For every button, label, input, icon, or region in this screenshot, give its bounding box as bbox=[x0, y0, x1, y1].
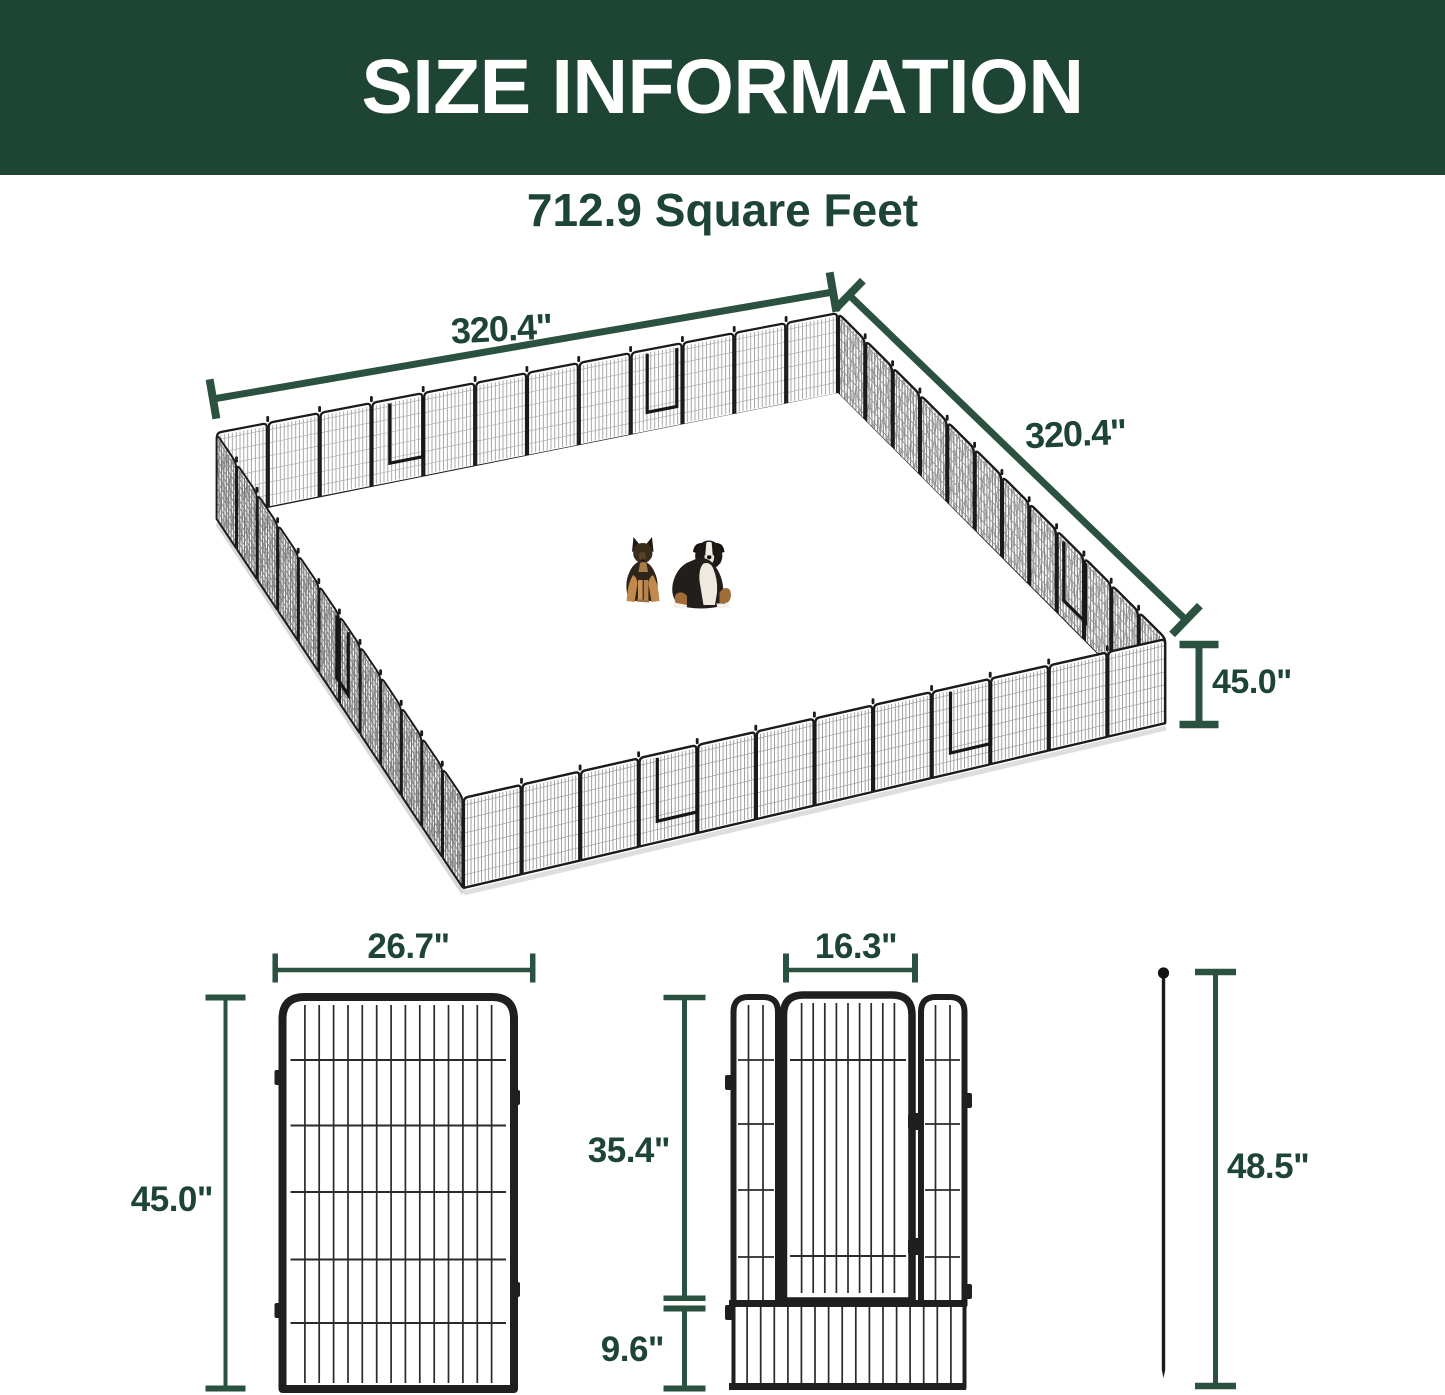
svg-text:320.4": 320.4" bbox=[450, 305, 553, 351]
svg-text:48.5": 48.5" bbox=[1227, 1147, 1309, 1186]
svg-text:9.6": 9.6" bbox=[601, 1330, 664, 1369]
svg-text:45.0": 45.0" bbox=[1212, 663, 1292, 701]
svg-text:320.4": 320.4" bbox=[1024, 411, 1127, 456]
svg-text:45.0": 45.0" bbox=[131, 1180, 213, 1219]
svg-text:16.3": 16.3" bbox=[815, 927, 897, 966]
svg-text:35.4": 35.4" bbox=[588, 1131, 670, 1170]
svg-text:26.7": 26.7" bbox=[367, 927, 449, 966]
